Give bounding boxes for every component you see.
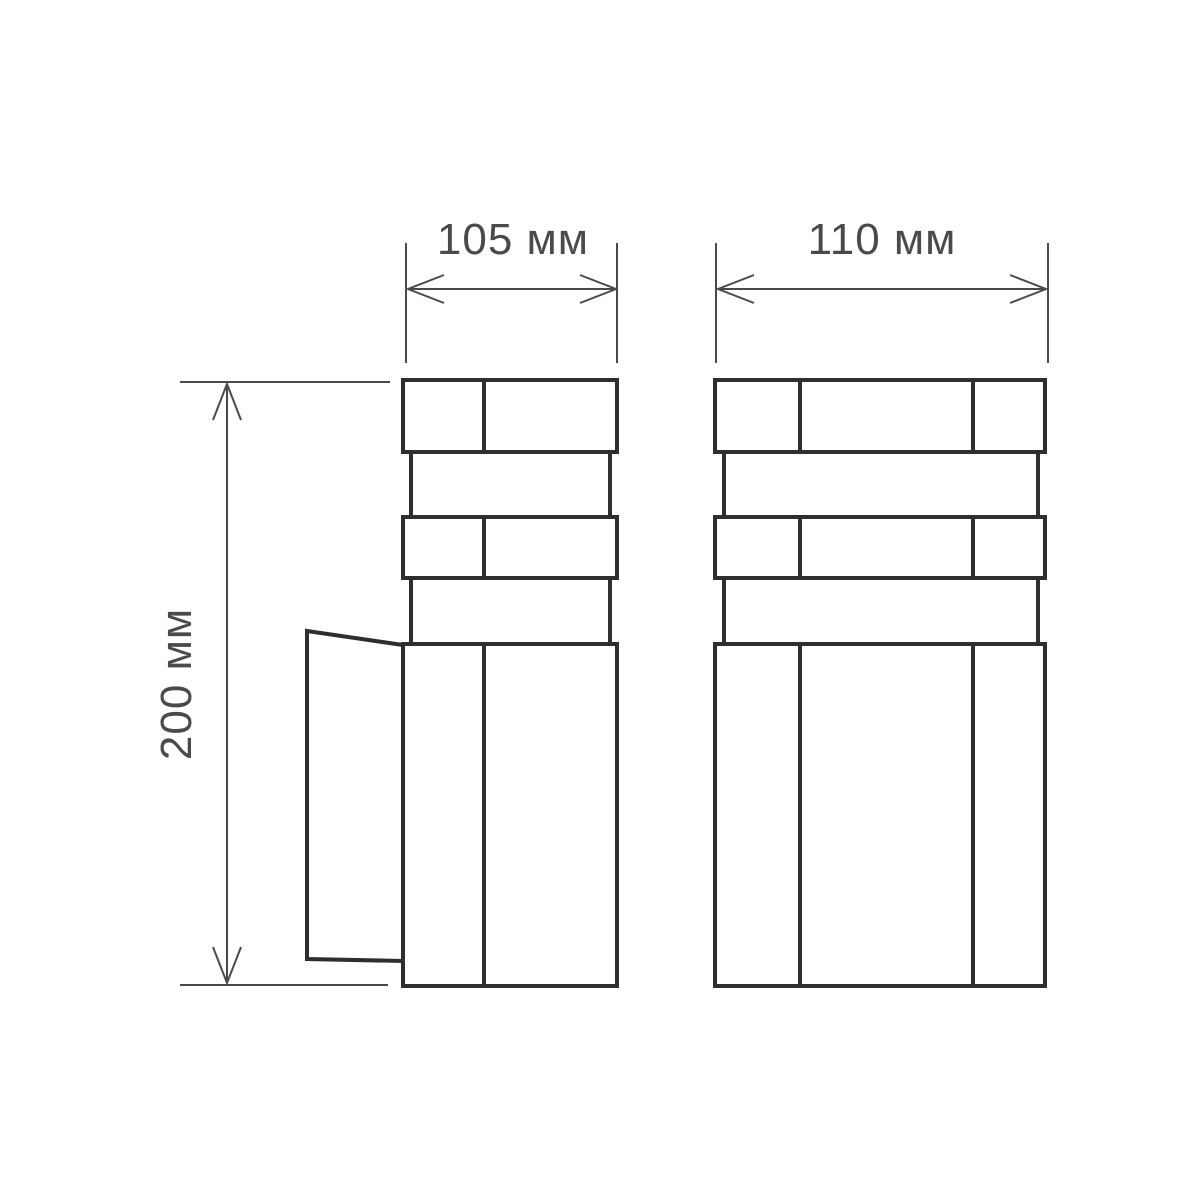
wall-mount-bracket — [307, 631, 403, 961]
side-top-cap — [403, 380, 617, 452]
front-spacer-band-lower — [724, 578, 1038, 644]
side-body — [403, 644, 617, 986]
side-middle-tier — [403, 517, 617, 578]
drawing-canvas: 105 мм 110 мм 200 мм — [0, 0, 1200, 1200]
dimension-front-width: 110 мм — [716, 215, 1048, 363]
technical-drawing: 105 мм 110 мм 200 мм — [0, 0, 1200, 1200]
side-spacer-band-upper — [411, 452, 610, 517]
front-top-cap — [715, 380, 1045, 452]
front-view — [715, 380, 1045, 986]
dimension-label-front-width: 110 мм — [808, 215, 957, 264]
dimension-label-height: 200 мм — [152, 608, 201, 760]
dimension-label-side-width: 105 мм — [437, 215, 589, 264]
side-spacer-band-lower — [411, 578, 610, 644]
front-body — [715, 644, 1045, 986]
front-spacer-band-upper — [724, 452, 1038, 517]
front-middle-tier — [715, 517, 1045, 578]
side-view — [307, 380, 617, 986]
dimension-side-width: 105 мм — [406, 215, 617, 363]
